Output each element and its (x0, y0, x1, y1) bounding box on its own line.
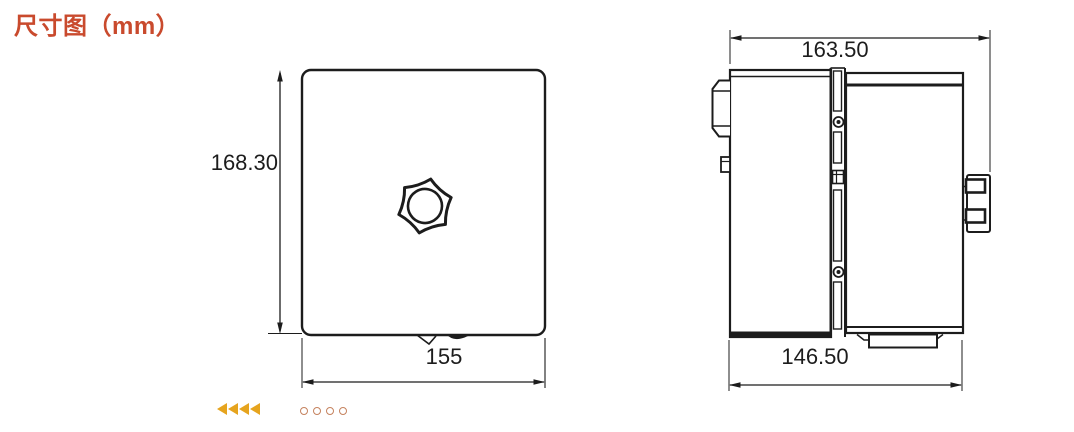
prev-arrow-icon[interactable] (228, 403, 238, 415)
dim-arrow-left-icon (730, 35, 742, 40)
dimension-diagram-page: 尺寸图（mm） 168.30 155 (0, 0, 1074, 432)
side-overall-depth-dimension: 163.50 (801, 37, 868, 62)
front-height-dimension: 168.30 (211, 150, 278, 175)
bottom-foot (869, 335, 937, 348)
side-connector-block (713, 81, 731, 137)
dim-arrow-right-icon (979, 35, 991, 40)
side-front-body (846, 73, 963, 333)
bottom-latch-notch (417, 335, 436, 344)
carousel-dot[interactable] (339, 407, 347, 415)
side-small-tab (721, 157, 730, 172)
pagination-arrows (217, 403, 261, 415)
dimension-drawing: 168.30 155 (0, 0, 1074, 432)
dim-arrow-right-icon (951, 382, 963, 387)
dim-arrow-up-icon (277, 70, 283, 82)
side-rear-body (730, 70, 831, 337)
hinge-bracket (833, 171, 844, 184)
prev-arrow-icon[interactable] (250, 403, 260, 415)
hinge-segment-4 (834, 282, 842, 329)
hinge-segment-3 (834, 190, 842, 261)
knob-side-tooth-bottom (966, 210, 985, 223)
prev-arrow-icon[interactable] (217, 403, 227, 415)
foot-left-notch (857, 335, 869, 341)
front-width-dimension: 155 (426, 344, 463, 369)
side-rear-bottom-band (730, 332, 831, 337)
dim-arrow-down-icon (277, 323, 283, 335)
prev-arrow-icon[interactable] (239, 403, 249, 415)
dim-arrow-left-icon (302, 379, 314, 384)
dim-arrow-right-icon (534, 379, 546, 384)
side-view: 163.50 146.50 (713, 30, 991, 391)
carousel-dot[interactable] (326, 407, 334, 415)
pagination-dots (300, 407, 347, 415)
screw-top-center (837, 120, 841, 124)
hinge-segment-2 (834, 132, 842, 163)
carousel-dot[interactable] (313, 407, 321, 415)
knob-side-tooth-top (966, 180, 985, 193)
side-body-depth-dimension: 146.50 (781, 344, 848, 369)
hinge-segment-1 (834, 71, 842, 111)
screw-bottom-center (837, 270, 841, 274)
front-view: 168.30 155 (211, 70, 545, 388)
bottom-latch-clip (446, 334, 468, 339)
carousel-dot[interactable] (300, 407, 308, 415)
dim-arrow-left-icon (729, 382, 741, 387)
